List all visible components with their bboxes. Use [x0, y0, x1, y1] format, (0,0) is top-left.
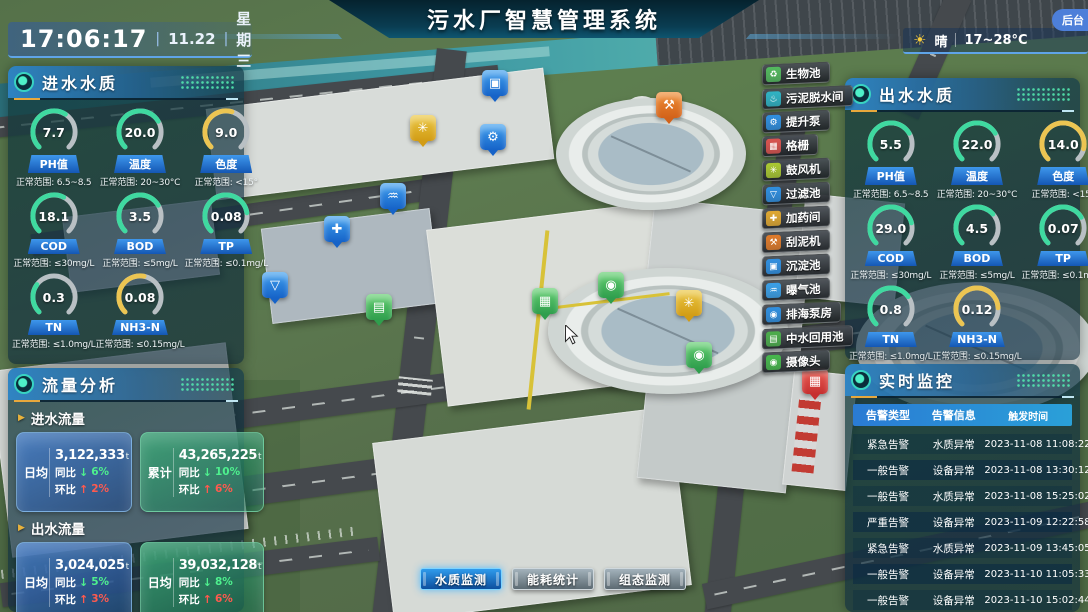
bio-pool-icon: ♻ — [766, 67, 781, 83]
alarm-row: 严重告警 设备异常 2023-11-09 12:22:58 — [853, 512, 1072, 532]
gauge-range: 正常范围: 6.5~8.5 — [853, 187, 928, 200]
alarm-table-body: 紧急告警 水质异常 2023-11-08 11:08:22 一般告警 设备异常 … — [845, 434, 1080, 610]
panel-icon — [851, 370, 871, 390]
trend-value: 6% — [91, 466, 109, 478]
gauge-ring: 0.3 — [28, 271, 80, 323]
weather-temp-range: 17~28°C — [964, 33, 1027, 48]
outlet-quality-panel: 出水水质 5.5 PH值 正常范围: 6.5~8.5 22.0 — [845, 78, 1080, 360]
legend-label: 中水回用池 — [786, 328, 844, 347]
gauge-BOD: 4.5 BOD 正常范围: ≤5mg/L — [932, 202, 1021, 281]
column-header: 告警信息 — [923, 407, 984, 423]
gauge-ring: 4.5 — [951, 202, 1003, 254]
alarm-type: 一般告警 — [853, 593, 923, 608]
header-underline — [851, 110, 1074, 112]
title-decoration — [746, 34, 900, 39]
red-equipment — [792, 398, 822, 474]
gauge-COD: 29.0 COD 正常范围: ≤30mg/L — [849, 202, 932, 281]
alarm-info: 设备异常 — [923, 463, 984, 478]
flow-card-body: 43,265,225t 同比↓10% 环比↑6% — [173, 448, 261, 497]
gauge-温度: 22.0 温度 正常范围: 20~30°C — [932, 118, 1021, 200]
dots-decoration — [180, 377, 234, 391]
filter-pool-icon: ▽ — [766, 187, 781, 203]
gauge-value: 14.0 — [1037, 118, 1088, 170]
dosing-marker[interactable]: ✚ — [324, 216, 350, 242]
gauge-TN: 0.8 TN 正常范围: ≤1.0mg/L — [849, 283, 932, 362]
header-underline — [851, 396, 1074, 398]
flow-mom: 环比↑3% — [55, 592, 129, 607]
alarm-info: 水质异常 — [923, 437, 984, 452]
alarm-type: 一般告警 — [853, 567, 923, 582]
column-header: 触发时间 — [984, 408, 1072, 423]
alarm-info: 设备异常 — [923, 567, 984, 582]
blower-marker[interactable]: ✳ — [410, 115, 436, 141]
panel-title: 进水水质 — [42, 70, 118, 94]
sedimentation-marker[interactable]: ▣ — [482, 70, 508, 96]
panel-header: 实时监控 — [845, 364, 1080, 396]
triangle-icon: ▶ — [18, 413, 25, 423]
gauge-range: 正常范围: ≤0.1mg/L — [184, 256, 267, 269]
gauge-label: NH3-N — [949, 332, 1005, 347]
clarifier-tank — [548, 268, 788, 394]
nav-button-组态监测[interactable]: 组态监测 — [604, 568, 686, 590]
arrow-down-icon: ↓ — [79, 466, 88, 479]
filter-marker[interactable]: ▽ — [262, 272, 288, 298]
flow-value: 39,032,128t — [179, 558, 261, 573]
flow-card-row: 日均 3,122,333t 同比↓6% 环比↑2% 累计 43,265,225t… — [8, 432, 244, 512]
dots-decoration — [180, 75, 234, 89]
legend-item-刮泥机[interactable]: ⚒ 刮泥机 — [762, 230, 830, 254]
aeration-marker[interactable]: ♒ — [380, 183, 406, 209]
flow-yoy: 同比↓5% — [55, 575, 129, 590]
gauge-label: TN — [28, 320, 80, 335]
gauge-value: 7.7 — [28, 106, 80, 158]
gauge-label: PH值 — [28, 155, 80, 173]
gauge-label: BOD — [114, 239, 166, 254]
gauge-ring: 0.12 — [951, 283, 1003, 335]
building — [261, 208, 441, 324]
gauge-ring: 5.5 — [865, 118, 917, 170]
reuse-pool-marker[interactable]: ▤ — [366, 294, 392, 320]
legend-label: 过滤池 — [786, 184, 821, 202]
panel-header: 流量分析 — [8, 368, 244, 400]
legend-label: 格栅 — [786, 137, 809, 154]
panel-header: 出水水质 — [845, 78, 1080, 110]
alarm-info: 设备异常 — [923, 515, 984, 530]
alarm-time: 2023-11-08 11:08:22 — [984, 439, 1072, 450]
bottom-nav: 水质监测能耗统计组态监测 — [420, 568, 686, 590]
legend-label: 刮泥机 — [786, 232, 821, 250]
legend-item-曝气池[interactable]: ♒ 曝气池 — [762, 278, 830, 302]
legend-label: 鼓风机 — [786, 160, 821, 178]
gauge-色度: 14.0 色度 正常范围: <15° — [1021, 118, 1088, 200]
gauge-value: 0.08 — [114, 271, 166, 323]
app-title-band: 污水厂智慧管理系统 — [329, 0, 759, 38]
legend-label: 沉淀池 — [786, 256, 821, 274]
alarm-info: 设备异常 — [923, 593, 984, 608]
panel-header: 进水水质 — [8, 66, 244, 98]
gauge-range: 正常范围: ≤5mg/L — [102, 256, 177, 269]
camera-icon: ◉ — [766, 355, 781, 371]
aeration-pool-marker[interactable]: ▦ — [532, 288, 558, 314]
legend-item-沉淀池[interactable]: ▣ 沉淀池 — [762, 254, 830, 278]
arrow-down-icon: ↓ — [203, 576, 212, 589]
legend-label: 提升泵 — [786, 112, 821, 130]
clock-bar: 17:06:17 | 11.22 | 星期三 — [8, 22, 252, 58]
gauge-温度: 20.0 温度 正常范围: 20~30°C — [95, 106, 184, 188]
gauge-value: 0.08 — [200, 190, 252, 242]
gauge-PH值: 5.5 PH值 正常范围: 6.5~8.5 — [849, 118, 932, 200]
gauge-ring: 18.1 — [28, 190, 80, 242]
clarifier-tank — [556, 98, 746, 210]
panel-title: 实时监控 — [879, 368, 955, 392]
gauge-range: 正常范围: 6.5~8.5 — [16, 175, 91, 188]
gauge-range: 正常范围: ≤30mg/L — [13, 256, 94, 269]
clock-time: 17:06:17 — [20, 25, 147, 53]
trend-value: 10% — [215, 466, 240, 478]
gauge-range: 正常范围: ≤5mg/L — [939, 268, 1014, 281]
flow-card-label: 累计 — [147, 464, 173, 481]
gauge-TP: 0.08 TP 正常范围: ≤0.1mg/L — [184, 190, 267, 269]
alarm-row: 一般告警 设备异常 2023-11-10 15:02:44 — [853, 590, 1072, 610]
flow-yoy: 同比↓6% — [55, 465, 129, 480]
column-header: 告警类型 — [853, 407, 923, 423]
panel-icon — [14, 72, 34, 92]
gauge-label: NH3-N — [112, 320, 168, 335]
alarm-table-header: 告警类型 告警信息 触发时间 — [853, 404, 1072, 426]
alarm-time: 2023-11-08 15:25:02 — [984, 491, 1072, 502]
gauge-value: 20.0 — [114, 106, 166, 158]
flow-unit: t — [258, 562, 261, 572]
gauge-value: 0.07 — [1037, 202, 1088, 254]
mouse-cursor — [565, 325, 579, 349]
clock-weekday: 星期三 — [236, 8, 251, 71]
header-underline — [14, 98, 238, 100]
trend-value: 3% — [91, 593, 109, 605]
flow-mom: 环比↑2% — [55, 482, 129, 497]
legend-item-过滤池[interactable]: ▽ 过滤池 — [762, 182, 830, 206]
alarm-time: 2023-11-10 11:05:33 — [984, 569, 1072, 580]
dosing-room-icon: ✚ — [766, 211, 781, 227]
flow-yoy: 同比↓10% — [179, 465, 261, 480]
trend-value: 2% — [91, 483, 109, 495]
blower-icon: ✳ — [766, 163, 781, 179]
legend-label: 污泥脱水间 — [786, 88, 844, 107]
gauge-label: COD — [28, 239, 80, 254]
gauge-label: 色度 — [200, 155, 252, 173]
lift-pump-icon: ⚙ — [766, 115, 781, 131]
page-title: 污水厂智慧管理系统 — [427, 3, 661, 35]
gauge-ring: 0.08 — [200, 190, 252, 242]
alarm-type: 紧急告警 — [853, 437, 923, 452]
arrow-down-icon: ↓ — [203, 466, 212, 479]
legend-item-加药间[interactable]: ✚ 加药间 — [762, 206, 830, 230]
trend-value: 6% — [215, 483, 233, 495]
flow-card: 日均 3,024,025t 同比↓5% 环比↑3% — [16, 542, 132, 612]
gauge-label: BOD — [951, 251, 1003, 266]
alarm-row: 一般告警 水质异常 2023-11-08 15:25:02 — [853, 486, 1072, 506]
inlet-quality-panel: 进水水质 7.7 PH值 正常范围: 6.5~8.5 20.0 — [8, 66, 244, 364]
arrow-up-icon: ↑ — [203, 593, 212, 606]
scraper-marker[interactable]: ⚒ — [656, 92, 682, 118]
grille-icon: ▦ — [766, 138, 781, 154]
flow-card: 日均 3,122,333t 同比↓6% 环比↑2% — [16, 432, 132, 512]
gauge-range: 正常范围: ≤1.0mg/L — [849, 349, 932, 362]
gauge-NH3-N: 0.08 NH3-N 正常范围: ≤0.15mg/L — [95, 271, 184, 350]
sea-pump-house-icon: ◉ — [766, 307, 781, 323]
flow-value: 43,265,225t — [179, 448, 261, 463]
gauge-label: COD — [865, 251, 917, 266]
flow-mom: 环比↑6% — [179, 482, 261, 497]
gauge-TN: 0.3 TN 正常范围: ≤1.0mg/L — [12, 271, 95, 350]
gauge-TP: 0.07 TP 正常范围: ≤0.1mg/L — [1021, 202, 1088, 281]
flow-card-row: 日均 3,024,025t 同比↓5% 环比↑3% 日均 39,032,128t… — [8, 542, 244, 612]
flow-card-label: 日均 — [147, 574, 173, 591]
arrow-up-icon: ↑ — [79, 593, 88, 606]
gauge-range: 正常范围: ≤0.15mg/L — [95, 337, 184, 350]
sun-icon: ☀ — [913, 33, 926, 48]
alarm-row: 一般告警 设备异常 2023-11-10 11:05:33 — [853, 564, 1072, 584]
gauge-ring: 3.5 — [114, 190, 166, 242]
divider: | — [155, 31, 160, 47]
legend-item-提升泵[interactable]: ⚙ 提升泵 — [762, 110, 830, 134]
clock-date: 11.22 — [168, 30, 215, 48]
gauge-value: 29.0 — [865, 202, 917, 254]
divider: | — [224, 31, 229, 47]
gauge-PH值: 7.7 PH值 正常范围: 6.5~8.5 — [12, 106, 95, 188]
flow-unit: t — [258, 452, 261, 462]
flow-yoy: 同比↓8% — [179, 575, 261, 590]
gauge-label: TP — [1037, 251, 1088, 266]
gauge-range: 正常范围: ≤1.0mg/L — [12, 337, 95, 350]
dots-decoration — [1016, 373, 1070, 387]
alarm-time: 2023-11-09 12:22:58 — [984, 517, 1072, 528]
dashboard-root: 污水厂智慧管理系统 17:06:17 | 11.22 | 星期三 ☀ 晴 17~… — [0, 0, 1088, 612]
alarm-row: 紧急告警 水质异常 2023-11-09 13:45:05 — [853, 538, 1072, 558]
flow-analysis-panel: 流量分析 ▶进水流量 日均 3,122,333t 同比↓6% 环比↑2% 累计 … — [8, 368, 244, 612]
gauge-value: 5.5 — [865, 118, 917, 170]
flow-mom: 环比↑6% — [179, 592, 261, 607]
gauge-ring: 20.0 — [114, 106, 166, 158]
gauge-value: 22.0 — [951, 118, 1003, 170]
monitoring-panel: 实时监控 告警类型 告警信息 触发时间 紧急告警 水质异常 2023-11-08… — [845, 364, 1080, 612]
gauge-label: PH值 — [865, 167, 917, 185]
gauge-ring: 29.0 — [865, 202, 917, 254]
alarm-row: 一般告警 设备异常 2023-11-08 13:30:12 — [853, 460, 1072, 480]
legend-label: 摄像头 — [786, 352, 821, 370]
panel-icon — [851, 84, 871, 104]
gauge-value: 3.5 — [114, 190, 166, 242]
inlet-gauge-grid: 7.7 PH值 正常范围: 6.5~8.5 20.0 温度 正常范围: 20~3… — [8, 102, 244, 350]
water-reuse-pool-icon: ▤ — [766, 331, 781, 347]
gauge-label: TP — [200, 239, 252, 254]
camera-marker-1[interactable]: ◉ — [598, 272, 624, 298]
flow-subtitle: ▶出水流量 — [18, 518, 244, 538]
alarm-row: 紧急告警 水质异常 2023-11-08 11:08:22 — [853, 434, 1072, 454]
flow-value: 3,024,025t — [55, 558, 129, 573]
alarm-time: 2023-11-08 13:30:12 — [984, 465, 1072, 476]
gauge-label: 色度 — [1037, 167, 1088, 185]
gauge-value: 4.5 — [951, 202, 1003, 254]
dots-decoration — [1016, 87, 1070, 101]
alarm-info: 水质异常 — [923, 489, 984, 504]
legend-label: 加药间 — [786, 208, 821, 226]
gauge-ring: 9.0 — [200, 106, 252, 158]
arrow-up-icon: ↑ — [203, 483, 212, 496]
header-underline — [14, 400, 238, 402]
equipment-legend: ♻ 生物池 ♨ 污泥脱水间 ⚙ 提升泵 ▦ 格栅 ✳ 鼓风机 ▽ 过滤池 ✚ 加… — [762, 63, 853, 372]
trend-value: 8% — [215, 576, 233, 588]
panel-title: 出水水质 — [879, 82, 955, 106]
blower-marker-2[interactable]: ✳ — [676, 290, 702, 316]
gauge-value: 0.3 — [28, 271, 80, 323]
alarm-type: 一般告警 — [853, 463, 923, 478]
gauge-ring: 7.7 — [28, 106, 80, 158]
flow-card-body: 39,032,128t 同比↓8% 环比↑6% — [173, 558, 261, 607]
aeration-pool-icon: ♒ — [766, 283, 781, 299]
flow-card-body: 3,024,025t 同比↓5% 环比↑3% — [49, 558, 129, 607]
camera-marker-2[interactable]: ◉ — [686, 342, 712, 368]
legend-item-中水回用池[interactable]: ▤ 中水回用池 — [762, 325, 853, 350]
alarm-type: 一般告警 — [853, 489, 923, 504]
gauge-range: 正常范围: <15° — [1032, 187, 1088, 200]
gauge-ring: 0.08 — [114, 271, 166, 323]
sludge-dewatering-icon: ♨ — [766, 91, 781, 107]
alarm-type: 严重告警 — [853, 515, 923, 530]
backend-button[interactable]: 后台 — [1052, 9, 1088, 31]
flow-card-label: 日均 — [23, 464, 49, 481]
panel-icon — [14, 374, 34, 394]
gauge-label: TN — [865, 332, 917, 347]
triangle-icon: ▶ — [18, 523, 25, 533]
crosswalk — [397, 376, 432, 395]
gauge-range: 正常范围: ≤0.15mg/L — [932, 349, 1021, 362]
arrow-down-icon: ↓ — [79, 576, 88, 589]
trend-value: 5% — [91, 576, 109, 588]
weather-bar: ☀ 晴 17~28°C — [903, 28, 1088, 54]
gauge-ring: 0.8 — [865, 283, 917, 335]
alarm-time: 2023-11-10 15:02:44 — [984, 595, 1072, 606]
gauge-label: 温度 — [114, 155, 166, 173]
lift-pump-marker[interactable]: ⚙ — [480, 124, 506, 150]
legend-item-格栅[interactable]: ▦ 格栅 — [762, 134, 818, 157]
gauge-range: 正常范围: 20~30°C — [937, 187, 1018, 200]
flow-unit: t — [126, 562, 129, 572]
flow-card-body: 3,122,333t 同比↓6% 环比↑2% — [49, 448, 129, 497]
gauge-NH3-N: 0.12 NH3-N 正常范围: ≤0.15mg/L — [932, 283, 1021, 362]
gauge-ring: 14.0 — [1037, 118, 1088, 170]
panel-title: 流量分析 — [42, 372, 118, 396]
legend-item-生物池[interactable]: ♻ 生物池 — [762, 62, 830, 86]
alarm-info: 水质异常 — [923, 541, 984, 556]
gauge-BOD: 3.5 BOD 正常范围: ≤5mg/L — [95, 190, 184, 269]
legend-label: 排海泵房 — [786, 304, 832, 322]
legend-label: 曝气池 — [786, 280, 821, 298]
gauge-range: 正常范围: 20~30°C — [100, 175, 181, 188]
flow-value: 3,122,333t — [55, 448, 129, 463]
gauge-range: 正常范围: ≤30mg/L — [850, 268, 931, 281]
gauge-色度: 9.0 色度 正常范围: <15° — [184, 106, 267, 188]
legend-item-摄像头[interactable]: ◉ 摄像头 — [762, 350, 830, 374]
flow-card: 日均 39,032,128t 同比↓8% 环比↑6% — [140, 542, 264, 612]
alarm-time: 2023-11-09 13:45:05 — [984, 543, 1072, 554]
nav-button-能耗统计[interactable]: 能耗统计 — [512, 568, 594, 590]
mud-scraper-icon: ⚒ — [766, 235, 781, 251]
arrow-up-icon: ↑ — [79, 483, 88, 496]
flow-card-label: 日均 — [23, 574, 49, 591]
outlet-gauge-grid: 5.5 PH值 正常范围: 6.5~8.5 22.0 温度 正常范围: 20~3… — [845, 114, 1080, 362]
flow-unit: t — [126, 452, 129, 462]
divider — [955, 33, 956, 47]
trend-value: 6% — [215, 593, 233, 605]
legend-item-污泥脱水间[interactable]: ♨ 污泥脱水间 — [762, 85, 853, 110]
flow-groups: ▶进水流量 日均 3,122,333t 同比↓6% 环比↑2% 累计 43,26… — [8, 408, 244, 612]
legend-label: 生物池 — [786, 64, 821, 82]
legend-item-鼓风机[interactable]: ✳ 鼓风机 — [762, 158, 830, 182]
gauge-range: 正常范围: <15° — [195, 175, 258, 188]
gauge-value: 18.1 — [28, 190, 80, 242]
gauge-value: 0.8 — [865, 283, 917, 335]
gauge-ring: 0.07 — [1037, 202, 1088, 254]
gauge-label: 温度 — [951, 167, 1003, 185]
nav-button-水质监测[interactable]: 水质监测 — [420, 568, 502, 590]
gauge-value: 9.0 — [200, 106, 252, 158]
gauge-COD: 18.1 COD 正常范围: ≤30mg/L — [12, 190, 95, 269]
gauge-ring: 22.0 — [951, 118, 1003, 170]
sedimentation-icon: ▣ — [766, 259, 781, 275]
gauge-range: 正常范围: ≤0.1mg/L — [1021, 268, 1088, 281]
alarm-type: 紧急告警 — [853, 541, 923, 556]
flow-subtitle: ▶进水流量 — [18, 408, 244, 428]
legend-item-排海泵房[interactable]: ◉ 排海泵房 — [762, 301, 841, 325]
gauge-value: 0.12 — [951, 283, 1003, 335]
weather-condition: 晴 — [934, 31, 947, 50]
flow-card: 累计 43,265,225t 同比↓10% 环比↑6% — [140, 432, 264, 512]
